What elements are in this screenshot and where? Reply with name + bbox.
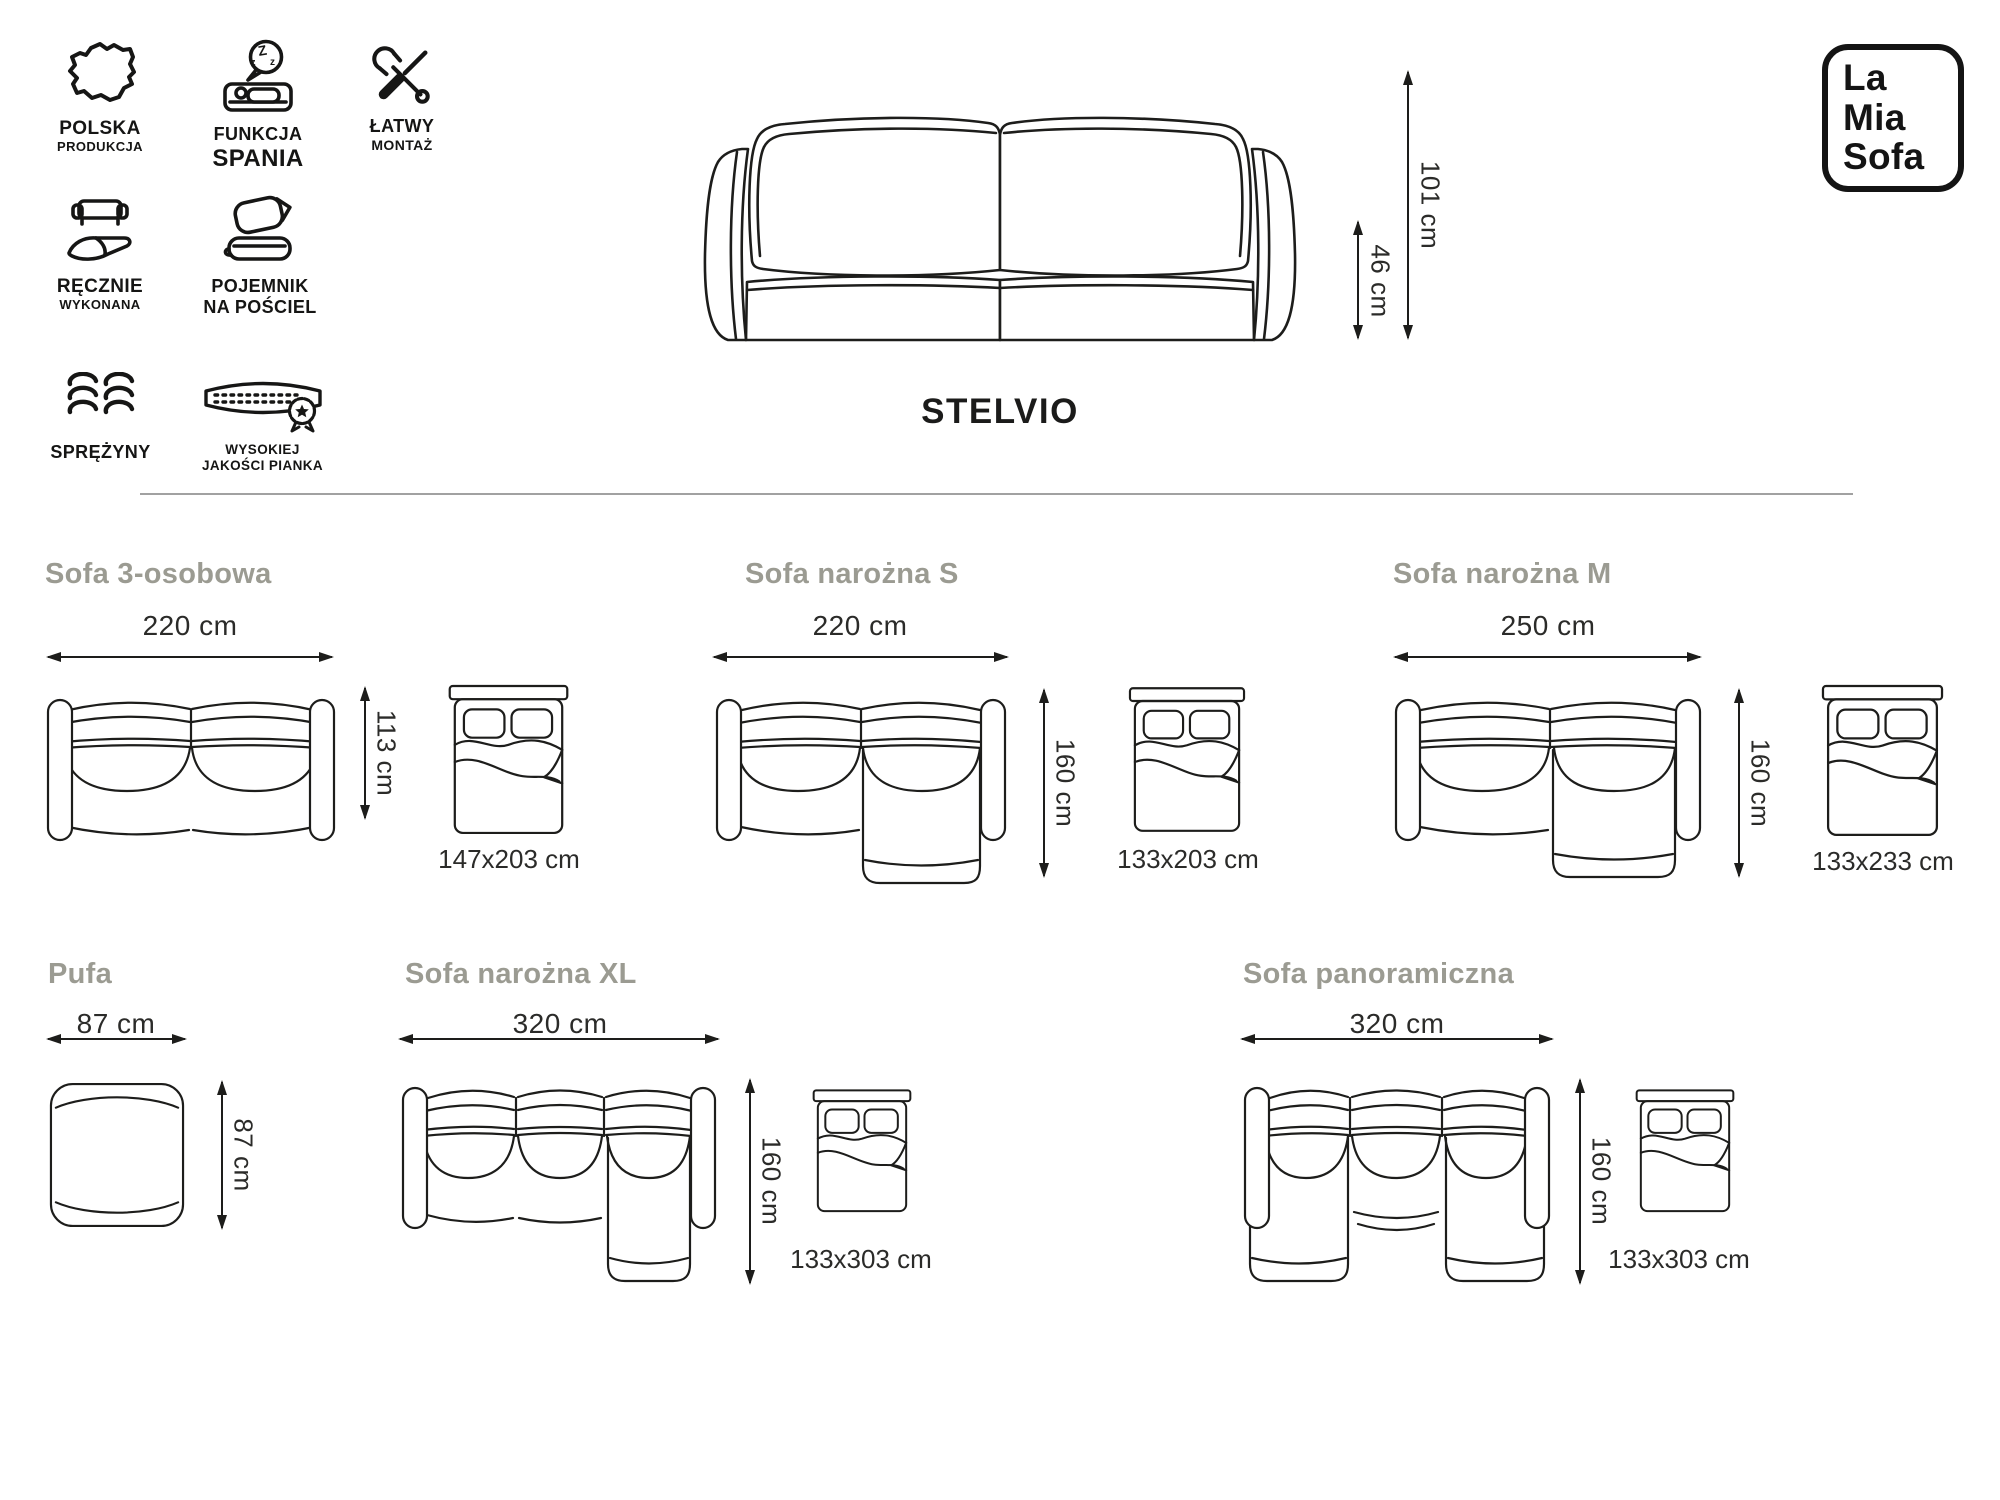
brand-logo: La Mia Sofa xyxy=(1822,44,1964,192)
bed-size-icon xyxy=(1635,1076,1735,1228)
bed-size-label: 133x203 cm xyxy=(1058,844,1318,875)
feature-sublabel: NA POŚCIEL xyxy=(203,297,316,318)
width-arrow xyxy=(48,656,332,658)
feature-springs: SPRĘŻYNY xyxy=(28,372,173,463)
variant-width-label: 220 cm xyxy=(143,610,238,642)
depth-arrow xyxy=(1043,690,1045,876)
seat-height-label: 46 cm xyxy=(1365,244,1396,317)
feature-sublabel: WYKONANA xyxy=(59,298,140,313)
variant-width-label: 320 cm xyxy=(513,1008,608,1040)
feature-label: ŁATWY xyxy=(370,116,435,137)
bedding-container-icon xyxy=(221,190,299,268)
width-arrow xyxy=(714,656,1007,658)
variant-width-label: 250 cm xyxy=(1501,610,1596,642)
width-arrow xyxy=(1395,656,1700,658)
variant-title-sofa-panoramiczna: Sofa panoramiczna xyxy=(1243,958,1514,991)
feature-label: POLSKA xyxy=(59,118,141,140)
sleep-function-icon: Z z z xyxy=(220,38,296,116)
depth-arrow xyxy=(364,688,366,818)
variant-title-sofa-narozna-s: Sofa narożna S xyxy=(745,558,959,591)
svg-text:z: z xyxy=(270,57,275,68)
product-name: STELVIO xyxy=(840,392,1160,432)
variant-width-label: 320 cm xyxy=(1350,1008,1445,1040)
variant-top-view-sofa-narozna-s xyxy=(714,690,1008,886)
variant-depth-label: 160 cm xyxy=(1586,1137,1617,1225)
total-height-label: 101 cm xyxy=(1415,161,1446,249)
feature-bedding-container: POJEMNIK NA POŚCIEL xyxy=(178,190,342,317)
bed-size-icon xyxy=(1128,684,1246,838)
variant-depth-label: 113 cm xyxy=(371,710,402,796)
variant-depth-label: 87 cm xyxy=(228,1118,259,1191)
variant-title-sofa-3-osobowa: Sofa 3-osobowa xyxy=(45,558,272,591)
variant-depth-label: 160 cm xyxy=(1745,739,1776,827)
feature-poland-production: POLSKA PRODUKCJA xyxy=(25,40,175,155)
depth-arrow xyxy=(1738,690,1740,876)
bed-size-icon xyxy=(447,684,570,838)
variant-top-view-sofa-3-osobowa xyxy=(45,690,337,848)
handmade-icon xyxy=(60,196,140,268)
feature-label: SPRĘŻYNY xyxy=(50,442,150,463)
feature-label: WYSOKIEJ xyxy=(225,442,299,458)
feature-sublabel: JAKOŚCI PIANKA xyxy=(202,458,323,474)
bed-size-label: 133x233 cm xyxy=(1753,846,2000,877)
feature-sublabel: SPANIA xyxy=(212,145,303,173)
feature-handmade: RĘCZNIE WYKONANA xyxy=(25,196,175,313)
feature-label: FUNKCJA xyxy=(214,124,303,145)
variant-title-sofa-narozna-xl: Sofa narożna XL xyxy=(405,958,637,991)
width-arrow xyxy=(1242,1038,1552,1040)
springs-icon xyxy=(63,372,139,434)
variant-top-view-sofa-panoramiczna xyxy=(1242,1078,1552,1284)
feature-foam-quality: WYSOKIEJ JAKOŚCI PIANKA xyxy=(170,374,355,473)
feature-easy-assembly: ŁATWY MONTAŻ xyxy=(332,44,472,153)
section-divider xyxy=(140,493,1853,495)
feature-sleep-function: Z z z FUNKCJA SPANIA xyxy=(183,38,333,172)
feature-sublabel: PRODUKCJA xyxy=(57,140,143,155)
product-front-view xyxy=(690,58,1310,342)
foam-quality-icon xyxy=(199,374,327,434)
width-arrow xyxy=(400,1038,718,1040)
total-height-arrow xyxy=(1407,72,1409,338)
width-arrow xyxy=(48,1038,185,1040)
variant-title-sofa-narozna-m: Sofa narożna M xyxy=(1393,558,1612,591)
bed-size-label: 133x303 cm xyxy=(731,1244,991,1275)
variant-width-label: 220 cm xyxy=(813,610,908,642)
svg-text:z: z xyxy=(251,57,256,67)
variant-title-pufa: Pufa xyxy=(48,958,112,991)
variant-top-view-sofa-narozna-xl xyxy=(400,1078,718,1284)
variant-top-view-sofa-narozna-m xyxy=(1393,690,1703,880)
bed-size-icon xyxy=(812,1076,912,1228)
variant-depth-label: 160 cm xyxy=(756,1137,787,1225)
feature-sublabel: MONTAŻ xyxy=(371,137,432,153)
variant-depth-label: 160 cm xyxy=(1050,739,1081,827)
bed-size-label: 133x303 cm xyxy=(1549,1244,1809,1275)
brand-line: Mia xyxy=(1843,98,1958,138)
svg-text:Z: Z xyxy=(257,42,269,59)
depth-arrow xyxy=(221,1082,223,1228)
brand-line: La xyxy=(1843,58,1958,98)
seat-height-arrow xyxy=(1357,222,1359,338)
feature-label: RĘCZNIE xyxy=(57,276,143,298)
sofa-spec-sheet: POLSKA PRODUKCJA Z z z FUNKCJA SPANIA xyxy=(0,0,2000,1500)
feature-label: POJEMNIK xyxy=(211,276,308,297)
bed-size-icon xyxy=(1820,684,1945,840)
variant-top-view-pufa xyxy=(48,1080,186,1230)
bed-size-label: 147x203 cm xyxy=(379,844,639,875)
easy-assembly-icon xyxy=(370,44,434,108)
variant-width-label: 87 cm xyxy=(77,1008,156,1040)
poland-map-icon xyxy=(63,40,137,110)
brand-line: Sofa xyxy=(1843,137,1958,177)
